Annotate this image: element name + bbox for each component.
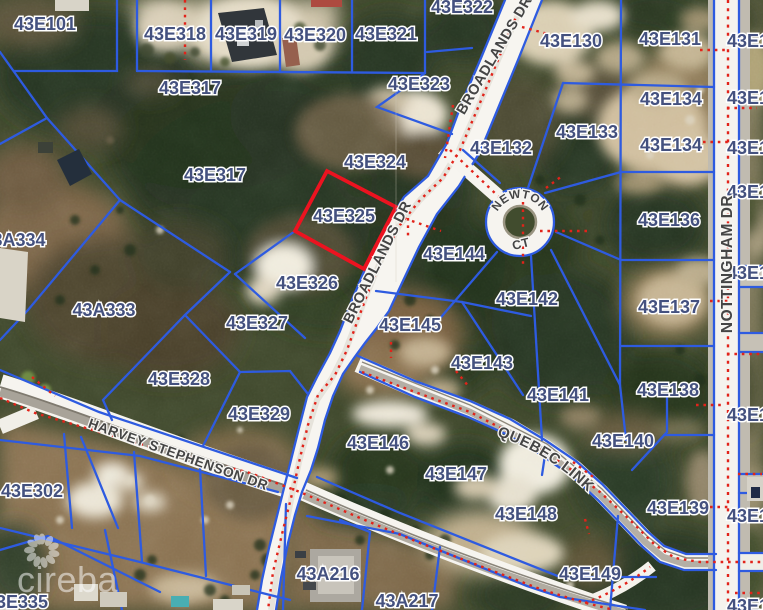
svg-text:43E137: 43E137 [638, 297, 700, 317]
svg-text:43E134: 43E134 [640, 89, 702, 109]
svg-text:43E130: 43E130 [540, 31, 602, 51]
svg-text:43E327: 43E327 [226, 313, 288, 333]
svg-text:43E324: 43E324 [344, 152, 406, 172]
svg-text:43E1: 43E1 [727, 88, 763, 108]
svg-text:43E321: 43E321 [355, 24, 417, 44]
svg-text:43E317: 43E317 [184, 165, 246, 185]
svg-text:43E328: 43E328 [148, 369, 210, 389]
svg-text:43E101: 43E101 [14, 14, 76, 34]
svg-text:43E325: 43E325 [313, 206, 375, 226]
svg-text:43E319: 43E319 [215, 24, 277, 44]
svg-text:43E145: 43E145 [379, 315, 441, 335]
svg-text:43E302: 43E302 [1, 481, 63, 501]
svg-text:43E329: 43E329 [228, 404, 290, 424]
svg-text:43E1: 43E1 [727, 596, 763, 610]
svg-text:43E134: 43E134 [640, 135, 702, 155]
svg-text:43E146: 43E146 [347, 433, 409, 453]
svg-text:43E138: 43E138 [637, 380, 699, 400]
svg-text:43A216: 43A216 [296, 564, 359, 584]
svg-text:43E326: 43E326 [276, 273, 338, 293]
svg-text:43E323: 43E323 [388, 74, 450, 94]
svg-text:43E1: 43E1 [727, 506, 763, 526]
svg-text:cireba: cireba [17, 559, 119, 600]
svg-text:43E142: 43E142 [496, 289, 558, 309]
svg-text:43E147: 43E147 [425, 464, 487, 484]
svg-text:43E139: 43E139 [647, 498, 709, 518]
svg-text:43A334: 43A334 [0, 230, 46, 250]
svg-text:43A333: 43A333 [72, 300, 135, 320]
svg-text:43E136: 43E136 [638, 210, 700, 230]
svg-text:NOTTINGHAM DR: NOTTINGHAM DR [719, 195, 736, 333]
svg-text:43E149: 43E149 [559, 564, 621, 584]
svg-text:43E148: 43E148 [495, 504, 557, 524]
svg-text:43E322: 43E322 [431, 0, 493, 17]
svg-text:43E317: 43E317 [159, 78, 221, 98]
svg-text:43E144: 43E144 [423, 244, 485, 264]
svg-text:43A217: 43A217 [375, 591, 438, 610]
svg-text:43E140: 43E140 [592, 431, 654, 451]
svg-text:43E1: 43E1 [727, 31, 763, 51]
svg-text:43E320: 43E320 [284, 25, 346, 45]
svg-text:43E318: 43E318 [144, 24, 206, 44]
svg-text:43E141: 43E141 [527, 385, 589, 405]
svg-text:43E1: 43E1 [727, 405, 763, 425]
svg-text:43E131: 43E131 [639, 29, 701, 49]
svg-text:43E1: 43E1 [727, 138, 763, 158]
svg-text:43E143: 43E143 [451, 353, 513, 373]
svg-text:43E133: 43E133 [556, 122, 618, 142]
svg-text:43E132: 43E132 [470, 138, 532, 158]
